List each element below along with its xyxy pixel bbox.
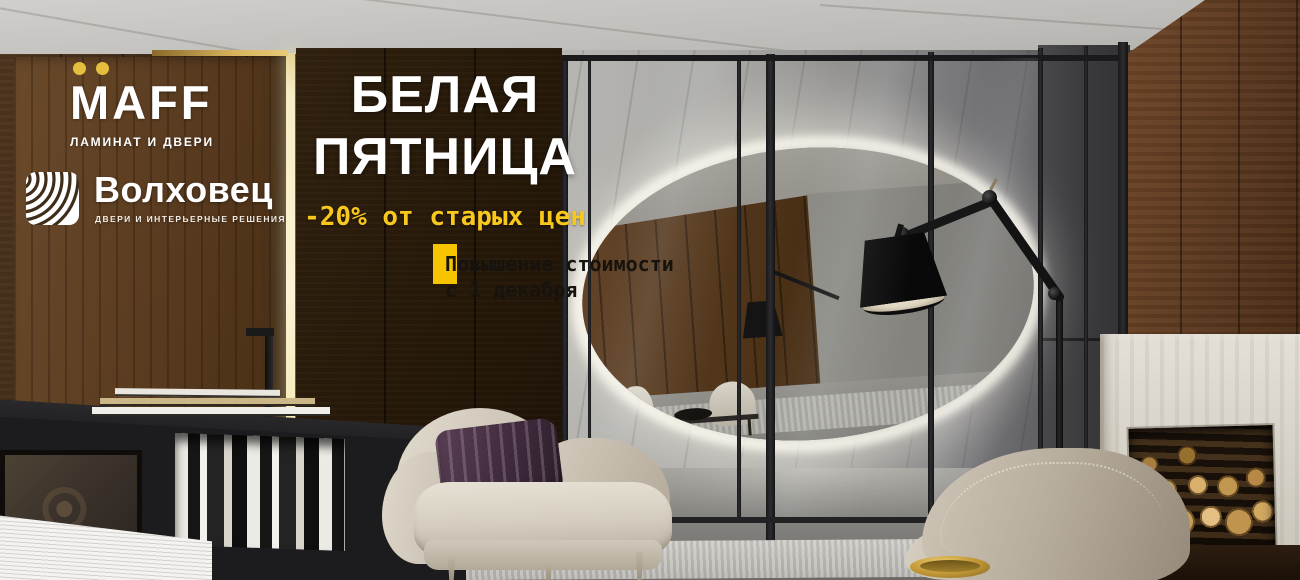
- gold-trim-top: [152, 50, 288, 56]
- glass-frame-mullion: [1118, 42, 1128, 345]
- price-increase-notice: Повышение стоимости с 1 декабря: [433, 244, 457, 284]
- maff-logo-dot-icon: [73, 62, 86, 75]
- volkhovets-logo: Волховец ДВЕРИ И ИНТЕРЬЕРНЫЕ РЕШЕНИЯ: [26, 170, 326, 224]
- beige-armchair-skirt: [424, 540, 662, 570]
- floor-lamp-shade: [851, 230, 949, 321]
- stacked-book: [115, 388, 280, 398]
- notice-line2: с 1 декабря: [445, 277, 577, 303]
- promo-title-line2: ПЯТНИЦА: [296, 126, 594, 188]
- promo-title-line1: БЕЛАЯ: [296, 64, 594, 126]
- stacked-book: [100, 398, 315, 406]
- stacked-book: [92, 407, 330, 416]
- floor-lamp-hinge: [1048, 287, 1061, 300]
- glass-frame-mullion: [737, 58, 741, 520]
- walnut-wall-right: [1124, 0, 1300, 345]
- glass-reflection: [934, 58, 1038, 517]
- lamp-shade-body: [851, 230, 947, 308]
- volkhovets-logo-tagline: ДВЕРИ И ИНТЕРЬЕРНЫЕ РЕШЕНИЯ: [95, 214, 326, 224]
- discount-text: -20% от старых цен: [296, 202, 594, 232]
- book-spines-row: [175, 433, 345, 551]
- brass-bowl: [910, 556, 990, 578]
- maff-logo-dot-icon: [96, 62, 109, 75]
- volkhovets-logo-name: Волховец: [94, 170, 326, 210]
- floor-lamp-hinge: [982, 190, 997, 205]
- maff-logo-name: MAFF: [70, 79, 250, 126]
- promo-text-block: БЕЛАЯ ПЯТНИЦА -20% от старых цен Повышен…: [296, 64, 594, 284]
- brass-bowl-inner: [920, 560, 980, 572]
- door-handle-top: [246, 328, 274, 336]
- maff-logo: MAFF ЛАМИНАТ И ДВЕРИ: [70, 62, 250, 149]
- maff-logo-tagline: ЛАМИНАТ И ДВЕРИ: [70, 135, 250, 149]
- glass-frame-mullion: [766, 54, 775, 560]
- notice-line1: Повышение стоимости: [445, 251, 674, 277]
- arc-rings-icon: [26, 172, 79, 225]
- promo-banner[interactable]: MAFF ЛАМИНАТ И ДВЕРИ Волховец ДВЕРИ И ИН…: [0, 0, 1300, 580]
